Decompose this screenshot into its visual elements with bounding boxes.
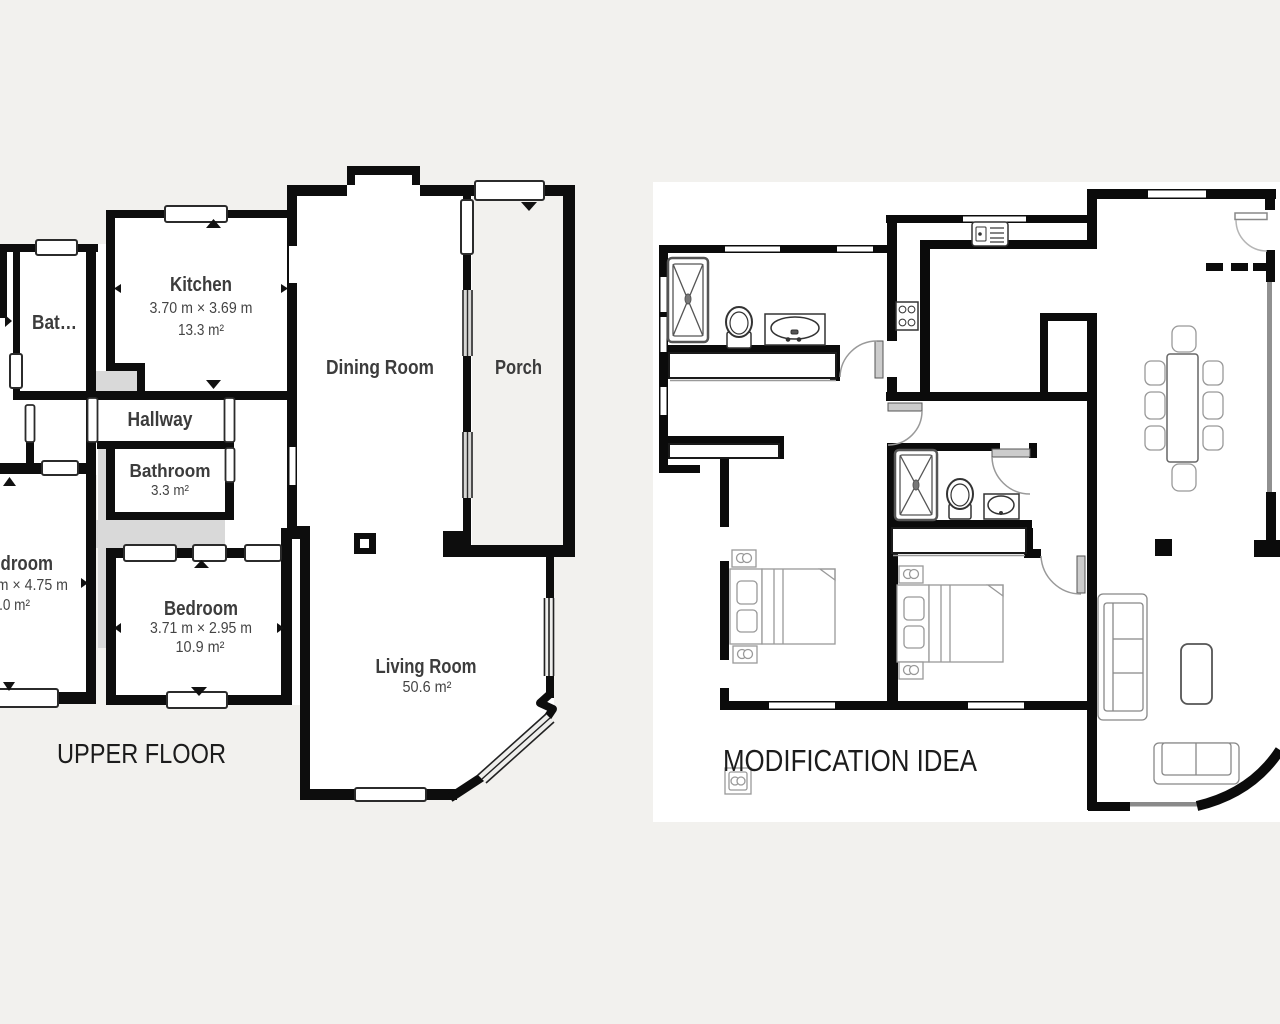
svg-text:Kitchen: Kitchen [170,274,232,296]
svg-text:3.3 m²: 3.3 m² [151,483,189,499]
svg-text:3.71 m × 2.95 m: 3.71 m × 2.95 m [150,620,252,637]
svg-text:MODIFICATION IDEA: MODIFICATION IDEA [723,744,978,778]
svg-text:Porch: Porch [495,357,542,379]
svg-text:UPPER FLOOR: UPPER FLOOR [57,738,226,769]
svg-text:10.9 m²: 10.9 m² [176,639,225,656]
svg-text:Hallway: Hallway [128,409,194,431]
svg-text:Living Room: Living Room [376,656,477,678]
svg-text:13.3 m²: 13.3 m² [178,322,224,339]
svg-text:Bathroom: Bathroom [130,461,211,481]
svg-text:Dining Room: Dining Room [326,357,434,379]
svg-text:Bedroom: Bedroom [0,553,53,575]
svg-text:3.60 m × 4.75 m: 3.60 m × 4.75 m [0,577,68,594]
svg-text:3.70 m × 3.69 m: 3.70 m × 3.69 m [150,300,253,317]
svg-text:50.6 m²: 50.6 m² [403,679,452,696]
svg-text:16.0 m²: 16.0 m² [0,597,30,614]
svg-text:Bat…: Bat… [32,312,77,334]
svg-text:Bedroom: Bedroom [164,598,238,620]
